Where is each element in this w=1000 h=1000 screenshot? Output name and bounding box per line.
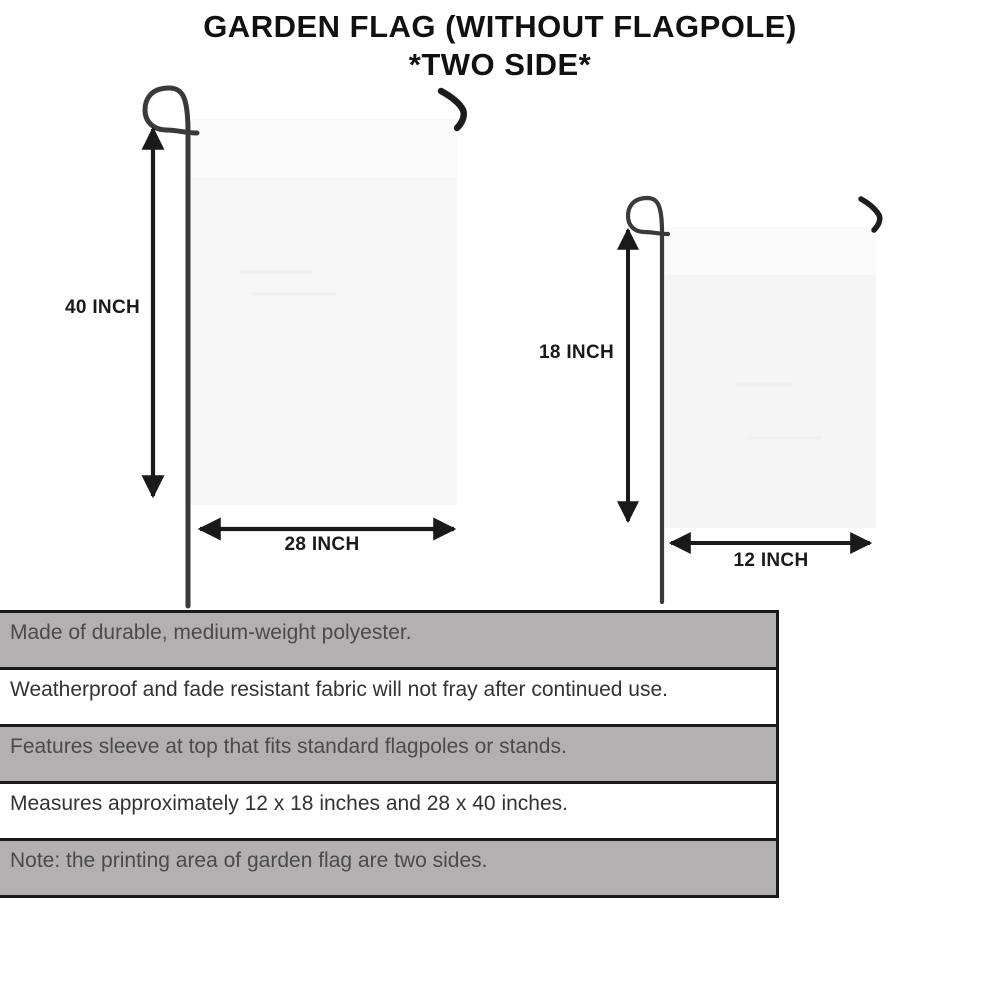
large-flag-sleeve	[191, 119, 457, 177]
small-height-label: 18 INCH	[514, 342, 614, 364]
feature-row: Note: the printing area of garden flag a…	[0, 841, 776, 895]
feature-text: Features sleeve at top that fits standar…	[10, 735, 567, 758]
feature-row: Measures approximately 12 x 18 inches an…	[0, 784, 776, 841]
feature-text: Measures approximately 12 x 18 inches an…	[10, 792, 568, 815]
small-width-label: 12 INCH	[711, 550, 831, 572]
feature-row: Features sleeve at top that fits standar…	[0, 727, 776, 784]
feature-text: Note: the printing area of garden flag a…	[10, 849, 487, 872]
features-table: Made of durable, medium-weight polyester…	[0, 610, 779, 898]
small-flagpole	[628, 198, 668, 602]
product-infographic: GARDEN FLAG (WITHOUT FLAGPOLE) *TWO SIDE…	[0, 0, 1000, 1000]
large-width-label: 28 INCH	[262, 534, 382, 556]
small-flag-sleeve	[663, 227, 876, 275]
feature-text: Made of durable, medium-weight polyester…	[10, 621, 412, 644]
feature-row: Made of durable, medium-weight polyester…	[0, 613, 776, 670]
small-flag-hook-icon	[861, 199, 880, 230]
large-height-label: 40 INCH	[40, 297, 140, 319]
feature-row: Weatherproof and fade resistant fabric w…	[0, 670, 776, 727]
feature-text: Weatherproof and fade resistant fabric w…	[10, 678, 668, 701]
